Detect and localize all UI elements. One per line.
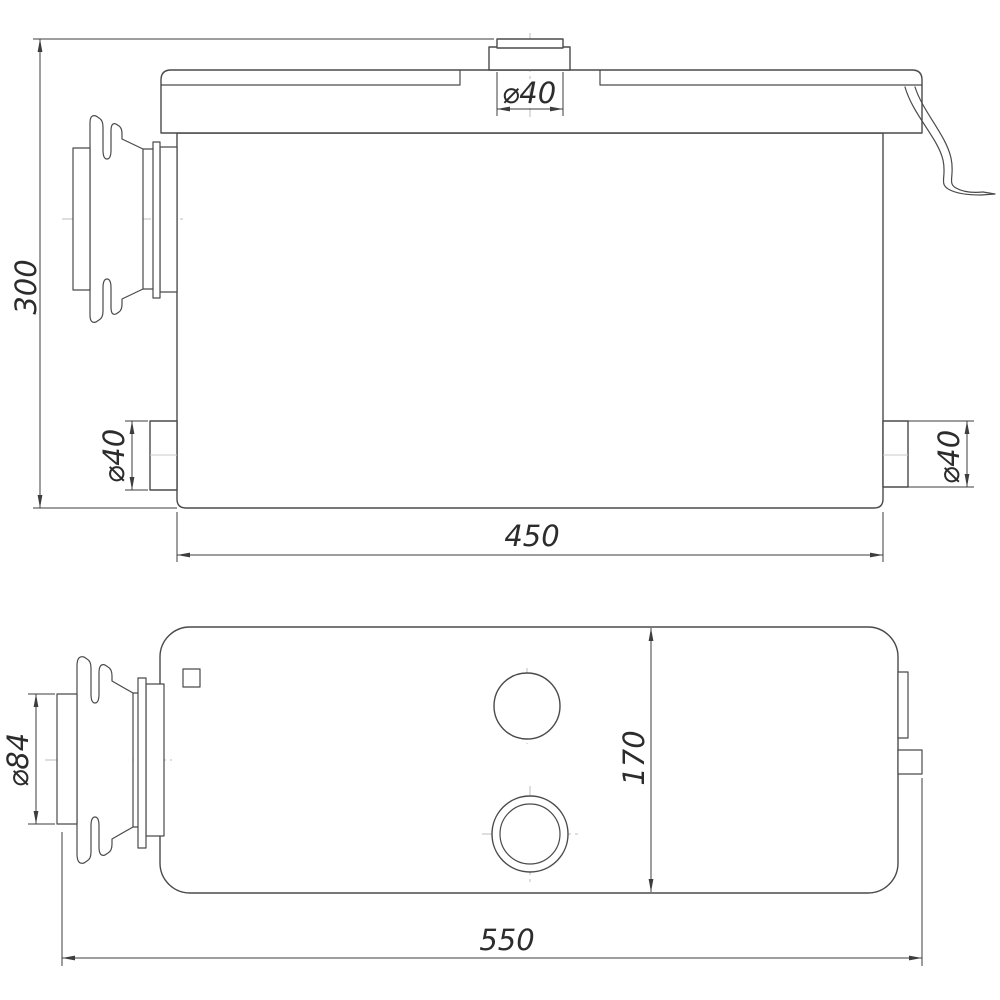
dim-left-outlet: ⌀40 (97, 421, 148, 490)
inlet-coupling-plan (45, 657, 172, 864)
coupling-flange-plan (138, 678, 146, 848)
dim-right-outlet: ⌀40 (908, 421, 974, 487)
dim-label-84: ⌀84 (1, 733, 35, 787)
coupling-flange-front (153, 142, 160, 298)
dim-label-left-outlet: ⌀40 (97, 429, 131, 483)
dim-label-top-outlet: ⌀40 (502, 76, 556, 110)
inlet-coupling-front (62, 116, 186, 323)
right-outlet-stub (883, 421, 908, 487)
coupling-cone-front (90, 116, 143, 323)
dim-450: 450 (177, 512, 883, 562)
dim-label-170: 170 (617, 730, 651, 785)
dim-label-300: 300 (9, 259, 43, 314)
front-view: 300 ⌀40 ⌀40 ⌀40 (9, 33, 995, 562)
plan-right-rib (898, 672, 908, 738)
dim-top-outlet: ⌀40 (497, 72, 563, 116)
dim-84: ⌀84 (1, 694, 55, 824)
dim-label-450: 450 (504, 519, 559, 553)
cable-plug-tip (981, 192, 995, 195)
plan-view: ⌀84 170 550 (1, 627, 922, 966)
plan-inlet-boss (183, 669, 200, 687)
coupling-cylinder-plan (57, 694, 77, 824)
technical-drawing: 300 ⌀40 ⌀40 ⌀40 (0, 0, 1000, 1000)
plan-right-stub (898, 750, 922, 774)
plan-bottom-opening (482, 786, 580, 882)
dim-550: 550 (62, 778, 922, 966)
coupling-cylinder-front (73, 148, 90, 290)
front-body-outline (177, 133, 883, 508)
coupling-sleeve-plan (146, 684, 164, 836)
dim-label-right-outlet: ⌀40 (932, 430, 966, 484)
left-outlet-stub (150, 421, 177, 490)
plan-top-opening (494, 668, 560, 744)
coupling-sleeve-front (160, 147, 177, 292)
dim-label-550: 550 (479, 923, 534, 957)
drawing-svg: 300 ⌀40 ⌀40 ⌀40 (0, 0, 1000, 1000)
coupling-cone-plan (77, 657, 133, 864)
dim-170: 170 (617, 628, 653, 892)
